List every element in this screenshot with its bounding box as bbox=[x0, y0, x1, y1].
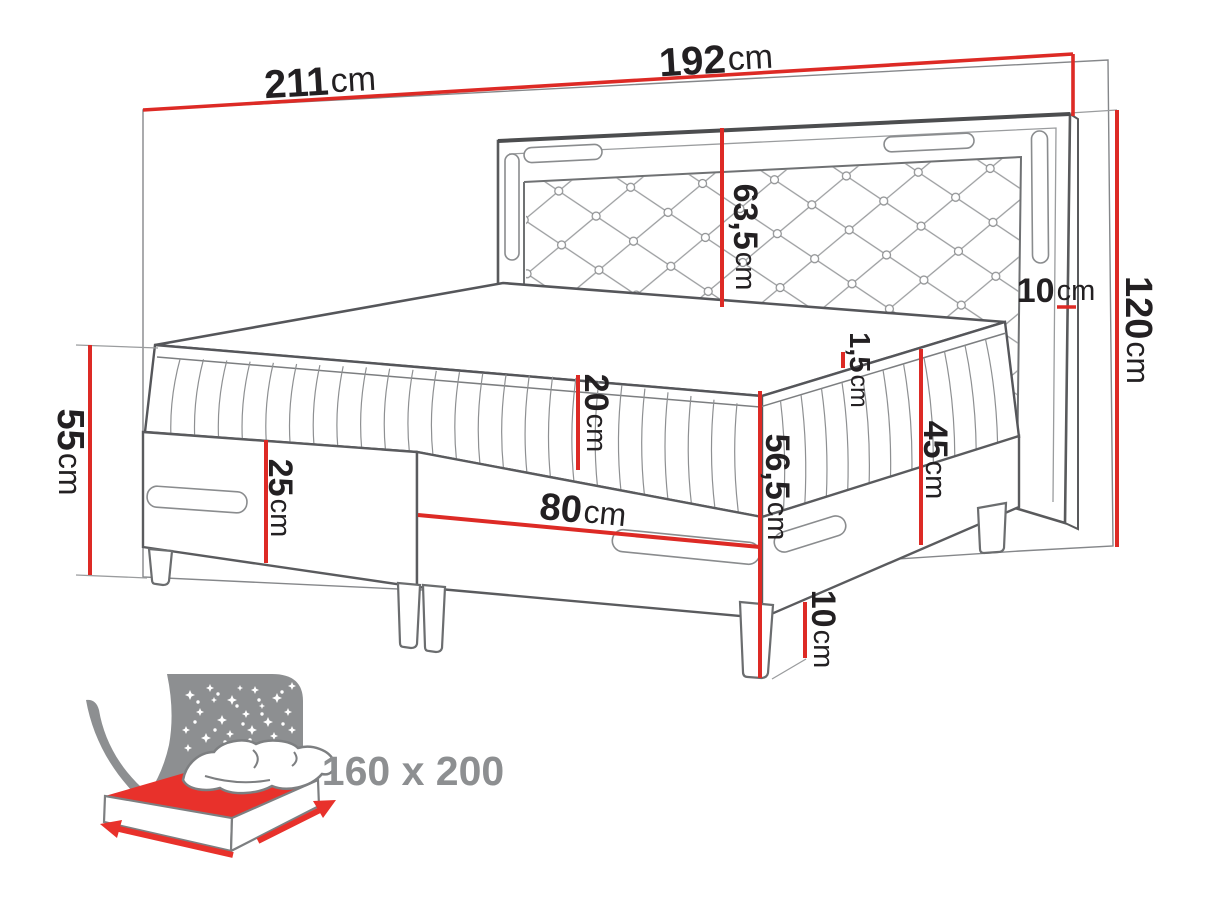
bed-leg bbox=[978, 503, 1006, 553]
dimension-label-side-height: 55cm bbox=[49, 409, 91, 496]
dimension-label-leg-height: 10cm bbox=[804, 590, 842, 669]
dimension-label-mattress-top-height: 56,5cm bbox=[758, 434, 796, 541]
diagram-canvas: 211cm 192cm 63,5cm 10cm 120cm 55cm 20cm … bbox=[0, 0, 1214, 911]
icon-moon-crescent bbox=[86, 700, 148, 793]
dimension-label-headboard-height: 120cm bbox=[1117, 276, 1159, 384]
size-label: 160 x 200 bbox=[322, 748, 504, 794]
dimension-label-panel-height: 63,5cm bbox=[726, 184, 764, 291]
dimension-label-mattress-height: 20cm bbox=[577, 374, 615, 453]
dimension-label-box-height: 25cm bbox=[261, 459, 299, 538]
dimension-label-frame-width: 10cm bbox=[1017, 272, 1096, 310]
dimension-label-topper-height: 1,5cm bbox=[843, 332, 875, 408]
dimension-label-base-top-height: 45cm bbox=[916, 421, 954, 500]
bed-dimension-diagram: 211cm 192cm 63,5cm 10cm 120cm 55cm 20cm … bbox=[0, 0, 1214, 911]
bed-leg bbox=[423, 585, 445, 652]
size-icon: 160 x 200 bbox=[86, 674, 504, 855]
bed-leg bbox=[398, 583, 420, 648]
bed-leg bbox=[740, 602, 773, 678]
bed-leg bbox=[149, 549, 172, 585]
